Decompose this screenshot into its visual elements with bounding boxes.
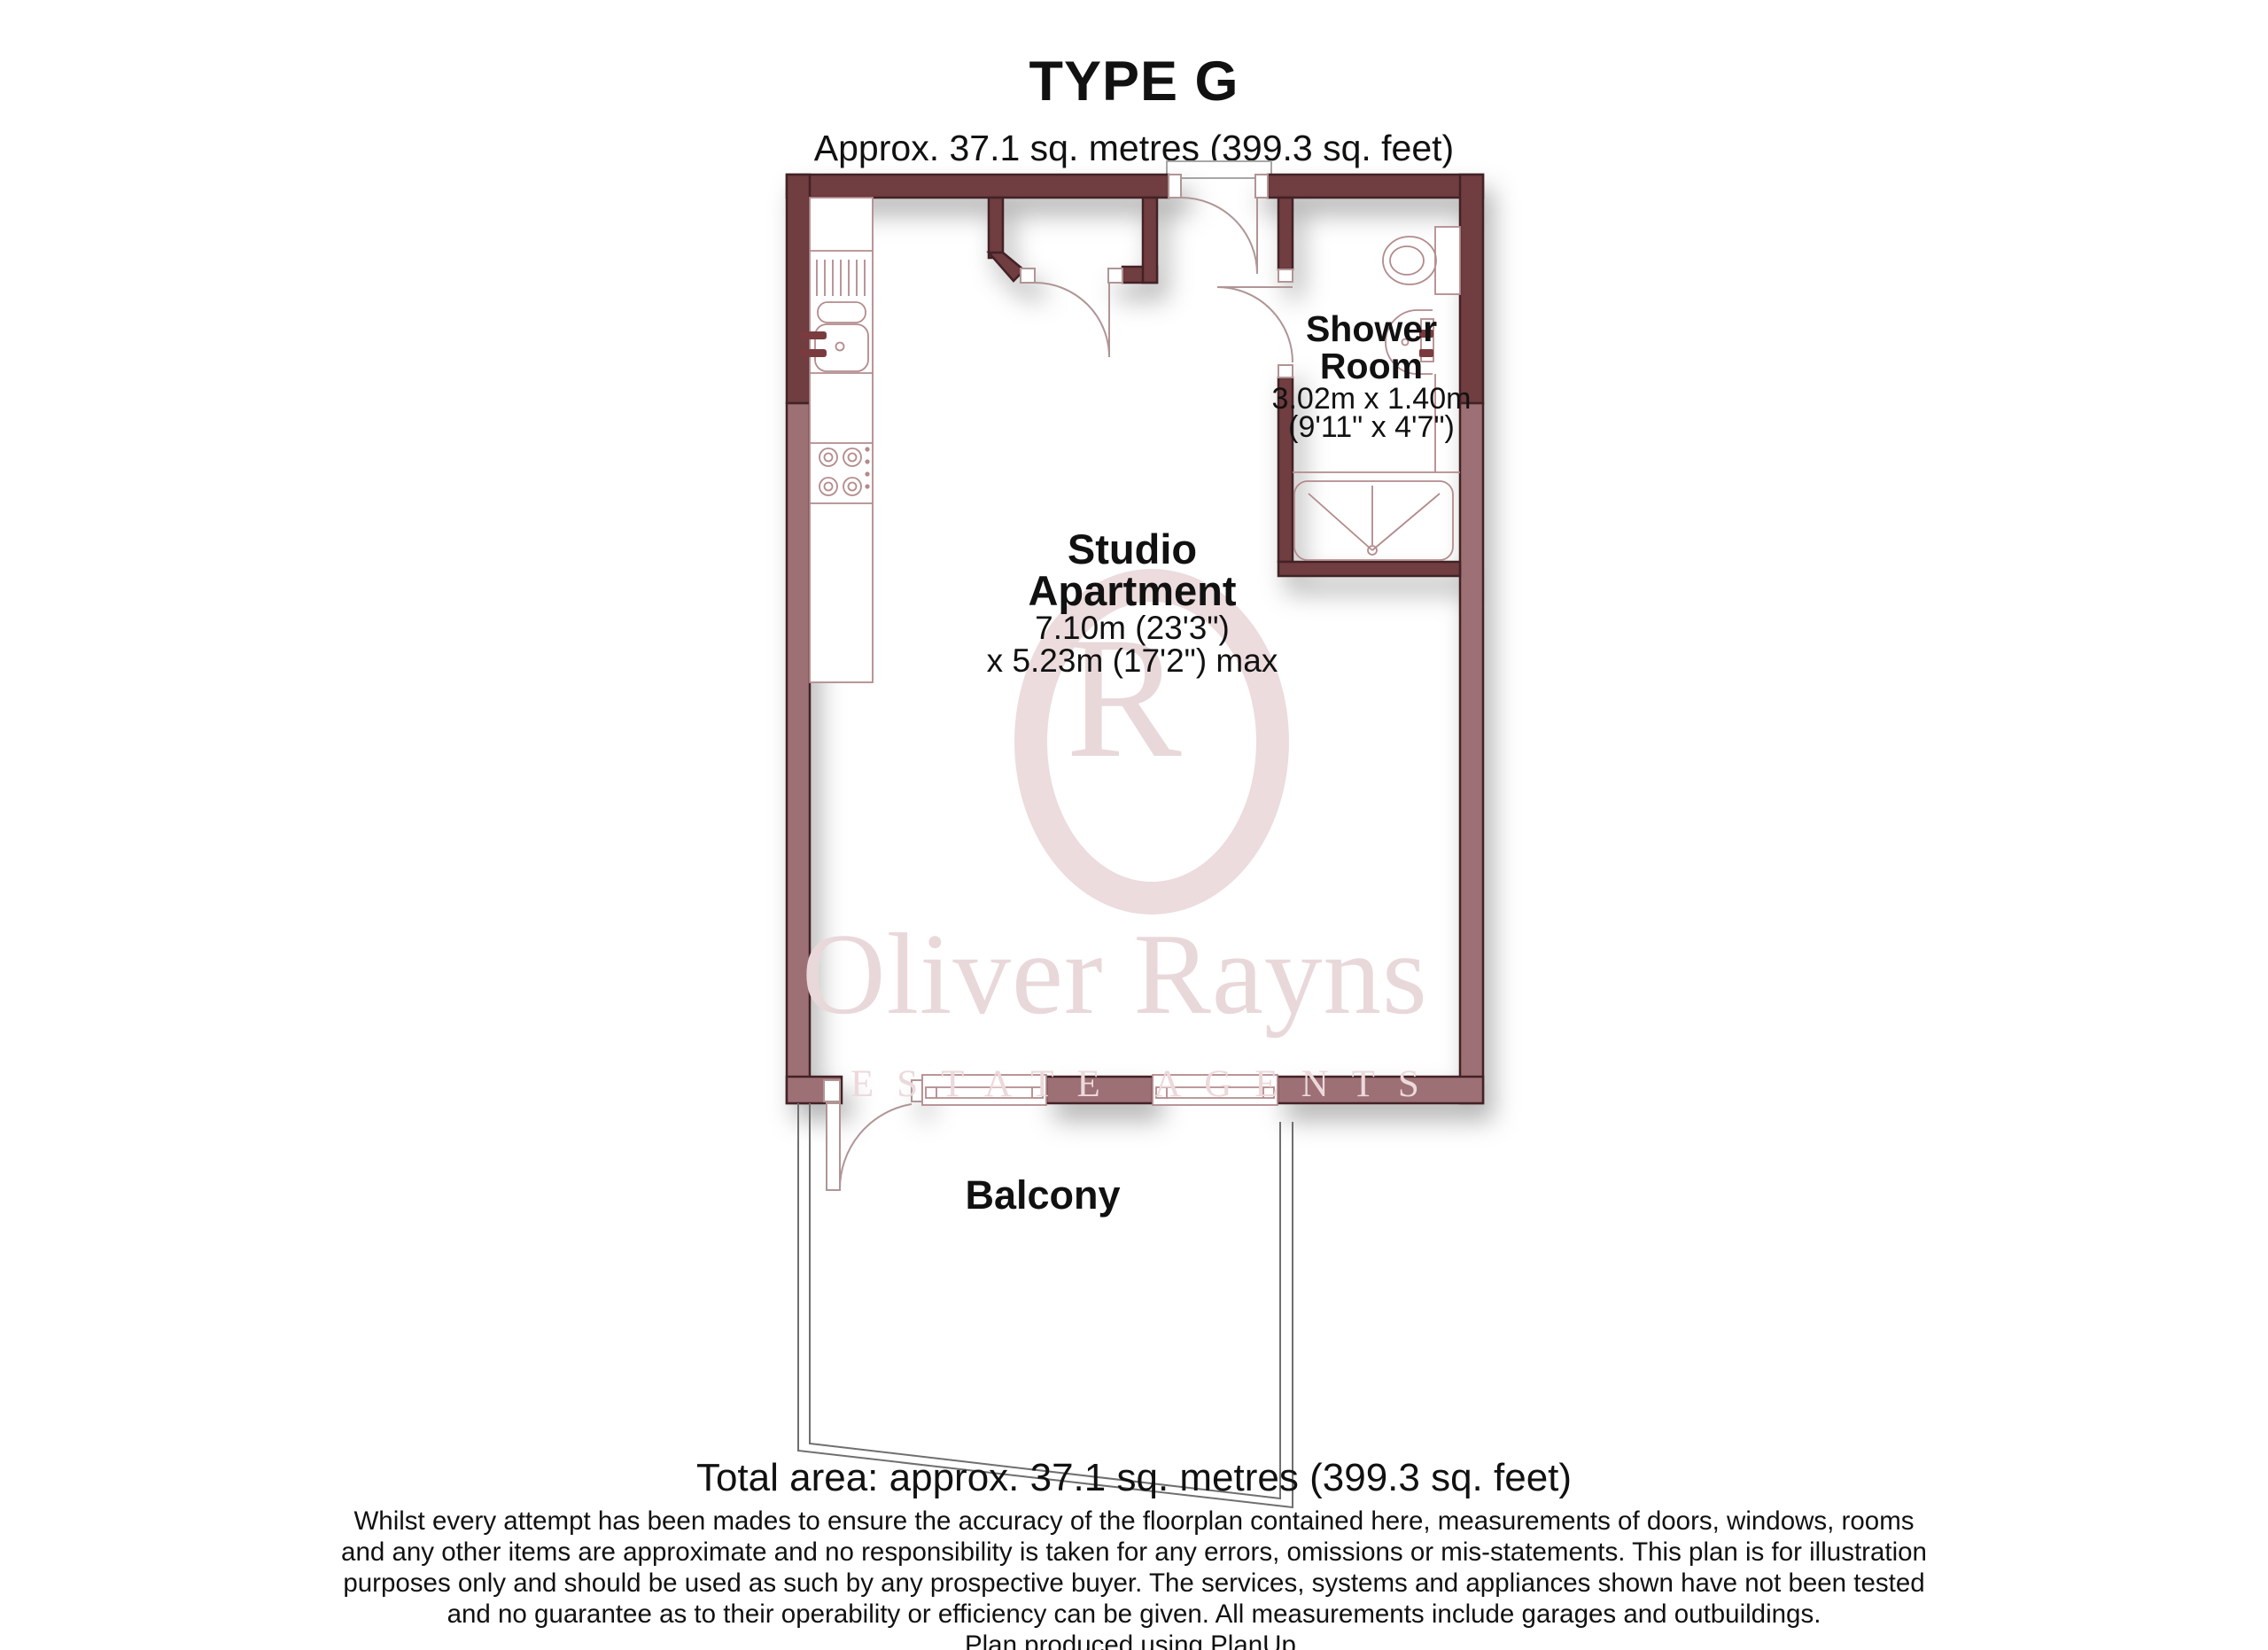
disclaimer-line: and any other items are approximate and … xyxy=(0,1537,2268,1568)
total-area-text: Total area: approx. 37.1 sq. metres (399… xyxy=(0,1456,2268,1500)
wall-right-lower xyxy=(1460,403,1483,1103)
jamb-entrance-left xyxy=(1169,175,1181,198)
wall-top-right xyxy=(1268,175,1483,198)
balcony-door xyxy=(827,1103,912,1190)
jamb-vestibule-right xyxy=(1108,269,1122,283)
shower-tray xyxy=(1294,481,1453,560)
balcony-outline xyxy=(798,1103,1293,1507)
wall-left-lower xyxy=(787,403,810,1103)
shower-room-label: Shower Room 3.02m x 1.40m (9'11" x 4'7") xyxy=(1272,310,1472,441)
room-name: Apartment xyxy=(987,570,1278,611)
door-arc xyxy=(1035,283,1109,357)
studio-apartment-label: Studio Apartment 7.10m (23'3") x 5.23m (… xyxy=(987,528,1278,677)
disclaimer-line: and no guarantee as to their operability… xyxy=(0,1599,2268,1630)
vestibule-door xyxy=(1035,283,1109,357)
door-arc xyxy=(1181,198,1257,274)
jamb-shower-top xyxy=(1278,269,1293,282)
wall-bottom-2 xyxy=(1046,1077,1153,1103)
room-dimensions-imperial: (9'11" x 4'7") xyxy=(1272,413,1472,441)
wall-shower-bottom xyxy=(1278,562,1460,576)
window-1 xyxy=(922,1075,1046,1105)
jamb-vestibule-left xyxy=(1021,269,1035,283)
disclaimer-block: Whilst every attempt has been mades to e… xyxy=(0,1506,2268,1650)
room-name: Shower xyxy=(1272,310,1472,347)
balcony-label: Balcony xyxy=(965,1172,1120,1218)
window-2 xyxy=(1153,1075,1278,1105)
jamb-balcony-left xyxy=(824,1080,840,1101)
door-arc xyxy=(840,1104,912,1190)
wall-vestibule-left xyxy=(989,198,1003,258)
wall-vestibule-diagonal xyxy=(989,253,1024,281)
credit-line: Plan produced using PlanUp. xyxy=(0,1630,2268,1650)
room-dimensions-imperial: x 5.23m (17'2") max xyxy=(987,644,1278,677)
toilet-bowl xyxy=(1383,237,1436,284)
doors xyxy=(827,198,1293,1190)
wall-left-upper xyxy=(787,175,810,403)
jamb-entrance-right xyxy=(1255,175,1268,198)
room-dimensions-metric: 3.02m x 1.40m xyxy=(1272,385,1472,413)
toilet-cistern xyxy=(1435,227,1460,294)
jamb-balcony-right xyxy=(912,1080,922,1101)
room-dimensions-metric: 7.10m (23'3") xyxy=(987,611,1278,644)
disclaimer-line: purposes only and should be used as such… xyxy=(0,1568,2268,1599)
wall-bottom-3 xyxy=(1278,1077,1483,1103)
floor-plan xyxy=(0,0,2268,1650)
room-name: Studio xyxy=(987,528,1278,570)
kitchen-fixtures xyxy=(800,198,873,682)
entrance-door xyxy=(1181,198,1257,274)
wall-vestibule-right xyxy=(1143,198,1157,283)
wall-top-left xyxy=(787,175,1169,198)
floorplan-page: TYPE G Approx. 37.1 sq. metres (399.3 sq… xyxy=(0,0,2268,1650)
room-name: Room xyxy=(1272,347,1472,385)
wall-shower-left-upper xyxy=(1278,198,1293,269)
disclaimer-line: Whilst every attempt has been mades to e… xyxy=(0,1506,2268,1537)
